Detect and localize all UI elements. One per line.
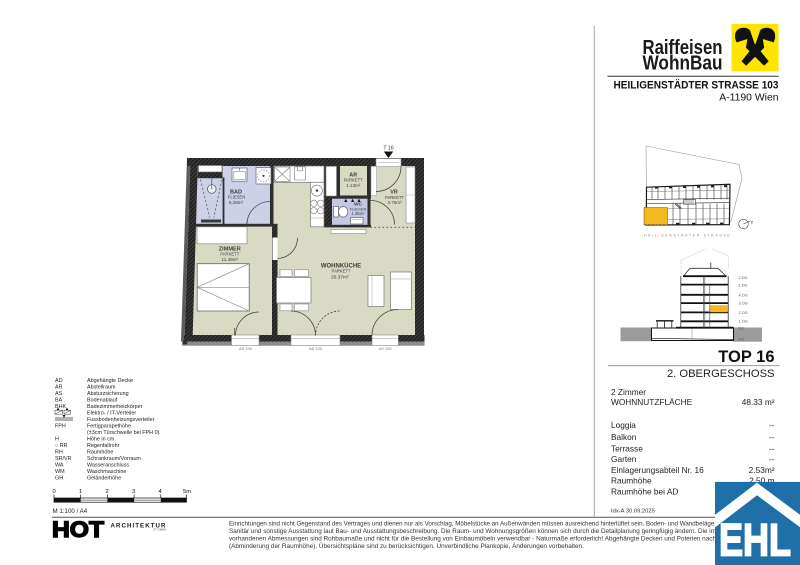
svg-text:--: -- [769,444,775,454]
svg-text:Schrankraum/Vorraum: Schrankraum/Vorraum [87,456,141,462]
svg-text:WohnBau: WohnBau [643,52,723,75]
svg-text:PARKETT: PARKETT [344,178,363,183]
svg-text:AS: AS [55,391,63,397]
svg-text:TOP 16: TOP 16 [718,348,774,366]
svg-text:HEILIGENSTÄDTER STRASSE 103: HEILIGENSTÄDTER STRASSE 103 [614,79,779,92]
svg-text:Waschmaschine: Waschmaschine [87,469,126,475]
svg-text:1: 1 [79,489,82,495]
svg-text:Einrichtungen sind nicht Gegen: Einrichtungen sind nicht Gegenstand des … [229,521,716,528]
svg-text:3.76m²: 3.76m² [387,200,402,205]
svg-text:○ RR: ○ RR [55,443,68,449]
svg-text:BA: BA [55,398,63,404]
svg-text:Einlagerungsabteil Nr. 16: Einlagerungsabteil Nr. 16 [611,465,704,475]
svg-text:Raumhöhe bei AD: Raumhöhe bei AD [611,486,678,496]
svg-text:Balkon: Balkon [611,432,637,442]
svg-text:Garten: Garten [611,454,637,464]
svg-text:2.DG: 2.DG [739,275,748,280]
svg-text:1.OG: 1.OG [739,319,748,324]
svg-text:SR/VR: SR/VR [55,456,72,462]
svg-text:1.13m²: 1.13m² [346,183,361,188]
svg-text:PARKETT: PARKETT [385,195,404,200]
svg-text:Sanitär und sonstige Ausstattu: Sanitär und sonstige Ausstattung laut Ba… [229,528,716,535]
svg-text:Absturzsicherung: Absturzsicherung [87,391,129,397]
svg-text:M 1:100 / A4: M 1:100 / A4 [53,508,88,515]
svg-text:48.33 m²: 48.33 m² [742,397,775,407]
svg-text:(±3cm Türschwelle bei FPH 0): (±3cm Türschwelle bei FPH 0) [87,430,160,436]
svg-text:(Abminderung der Raumhöhe). Üb: (Abminderung der Raumhöhe). Übersichtspl… [229,542,584,550]
svg-text:Terrasse: Terrasse [611,444,643,454]
svg-text:AR: AR [55,385,63,391]
svg-text:4.OG: 4.OG [739,293,748,298]
svg-text:Badezimmerheizkörper: Badezimmerheizkörper [87,404,143,410]
svg-text:3.OG: 3.OG [739,301,748,306]
svg-text:--: -- [769,454,775,464]
svg-text:2 Zimmer: 2 Zimmer [611,387,646,397]
svg-text:vorhandenen Abmessungen sind R: vorhandenen Abmessungen sind Rohbaumaße … [229,536,716,543]
svg-text:Idx-A 30.09.2025: Idx-A 30.09.2025 [611,509,655,515]
svg-text:2.OG: 2.OG [739,310,748,315]
svg-text:11.49m²: 11.49m² [222,257,239,262]
svg-text:25.37m²: 25.37m² [331,274,349,280]
svg-text:RH: RH [55,450,63,456]
svg-text:AS 100: AS 100 [239,346,253,351]
svg-text:T 16: T 16 [383,146,393,152]
svg-text:--: -- [769,432,775,442]
svg-text:Raumhöhe: Raumhöhe [87,450,113,456]
svg-text:Fussbodenheizungsverteiler: Fussbodenheizungsverteiler [87,417,155,423]
svg-text:HEILIGENSTÄDTER STRASSE: HEILIGENSTÄDTER STRASSE [644,234,731,238]
svg-text:AS 100: AS 100 [378,346,392,351]
svg-text:AD: AD [55,378,63,384]
svg-text:3: 3 [132,489,135,495]
svg-text:BHK: BHK [55,404,66,410]
svg-text:EG: EG [739,326,745,331]
svg-text:2.53m²: 2.53m² [749,465,775,475]
svg-text:5m: 5m [183,489,191,495]
svg-text:Höhe in cm: Höhe in cm [87,437,115,443]
svg-text:2: 2 [106,489,109,495]
svg-text:HOT: HOT [52,517,105,542]
svg-text:Bodenablauf: Bodenablauf [87,398,118,404]
svg-text:A-1190 Wien: A-1190 Wien [719,93,779,104]
svg-text:Fertigparapethöhe: Fertigparapethöhe [87,424,131,430]
svg-text:FPH: FPH [55,424,66,430]
svg-text:0: 0 [53,489,56,495]
svg-text:FLIESEN: FLIESEN [228,195,245,200]
svg-text:ZT GMBH: ZT GMBH [153,528,166,532]
svg-text:PARKETT: PARKETT [331,269,350,274]
svg-text:PARKETT: PARKETT [220,252,239,257]
svg-text:WA: WA [55,463,64,469]
svg-text:Abgehängte Decke: Abgehängte Decke [87,378,133,384]
svg-text:5.28m²: 5.28m² [229,200,244,205]
svg-text:AS 100: AS 100 [309,346,323,351]
svg-text:Abstellraum: Abstellraum [87,385,116,391]
svg-text:Raumhöhe: Raumhöhe [611,476,652,486]
svg-text:1.DG: 1.DG [739,283,748,288]
svg-text:EHL: EHL [719,515,791,565]
svg-text:Loggia: Loggia [611,420,636,430]
svg-text:WOHNNUTZFLÄCHE: WOHNNUTZFLÄCHE [611,397,693,407]
svg-text:H: H [55,437,59,443]
svg-text:--: -- [769,420,775,430]
svg-text:Elektro- / IT-Verteiler: Elektro- / IT-Verteiler [87,411,136,417]
svg-text:2. OBERGESCHOSS: 2. OBERGESCHOSS [667,368,775,380]
svg-text:Wasseranschluss: Wasseranschluss [87,463,129,469]
svg-text:Regenfallrohr: Regenfallrohr [87,443,120,449]
svg-text:GH: GH [55,476,63,482]
svg-text:Geländerhöhe: Geländerhöhe [87,476,121,482]
svg-text:WM: WM [55,469,65,475]
svg-text:1.35m²: 1.35m² [351,211,365,216]
svg-text:KG: KG [739,336,745,341]
